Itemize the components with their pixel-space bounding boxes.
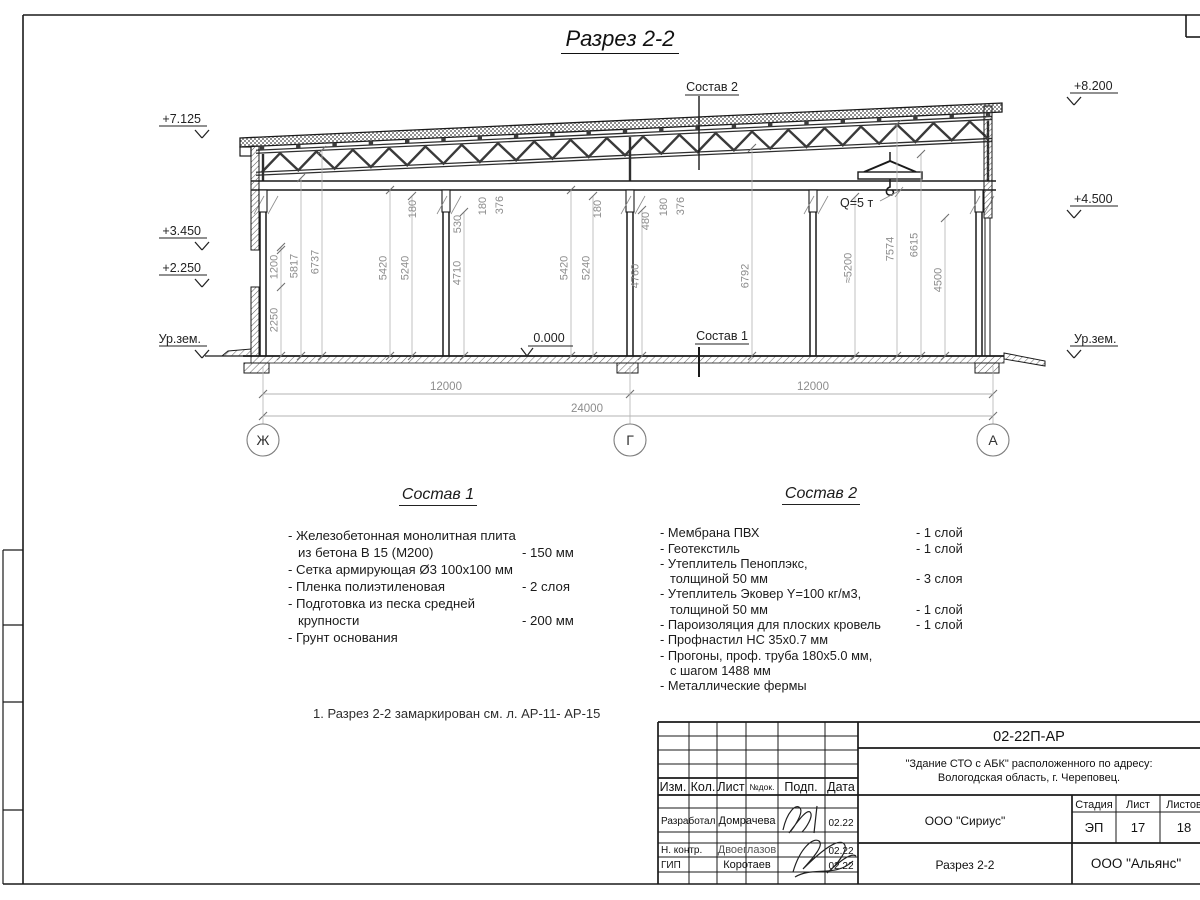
sheet-label: Лист bbox=[1126, 799, 1150, 811]
zero-level-label: 0.000 bbox=[533, 331, 564, 345]
svg-text:+3.450: +3.450 bbox=[162, 224, 201, 238]
crane-beam-line bbox=[251, 181, 996, 190]
vertical-dimension-texts: 2250 1200 5817 6737 5420 5240 4710 180 5… bbox=[269, 196, 945, 332]
right-apron bbox=[1004, 353, 1045, 366]
row-name: Коротаев bbox=[723, 859, 771, 871]
stage-value: ЭП bbox=[1085, 820, 1104, 835]
svg-text:1200: 1200 bbox=[269, 255, 281, 279]
design-org: ООО "Сириус" bbox=[925, 814, 1005, 828]
svg-text:+7.125: +7.125 bbox=[162, 112, 201, 126]
sheet-number: 17 bbox=[1131, 820, 1145, 835]
footings bbox=[244, 363, 999, 373]
svg-text:180: 180 bbox=[477, 197, 489, 215]
crane-hoist bbox=[858, 152, 922, 195]
drawing-sheet: Разрез 2-2 Состав 1 - Железобетонная мон… bbox=[0, 0, 1200, 900]
svg-text:5240: 5240 bbox=[581, 256, 593, 280]
svg-text:4760: 4760 bbox=[630, 264, 642, 288]
section-drawing-svg: 2250 1200 5817 6737 5420 5240 4710 180 5… bbox=[0, 0, 1200, 900]
svg-text:Ур.зем.: Ур.зем. bbox=[159, 332, 201, 346]
col-ndok: №док. bbox=[750, 782, 775, 792]
row-name: Домрачева bbox=[719, 815, 777, 827]
svg-text:376: 376 bbox=[675, 197, 687, 215]
svg-text:6615: 6615 bbox=[909, 233, 921, 257]
svg-text:180: 180 bbox=[592, 200, 604, 218]
svg-text:7574: 7574 bbox=[885, 237, 897, 261]
signature-1 bbox=[783, 807, 811, 833]
svg-text:5420: 5420 bbox=[559, 256, 571, 280]
svg-text:Ур.зем.: Ур.зем. bbox=[1074, 332, 1116, 346]
row-role: Разработал bbox=[661, 815, 716, 827]
svg-text:180: 180 bbox=[407, 200, 419, 218]
left-apron bbox=[222, 349, 251, 356]
col-list: Лист bbox=[717, 780, 744, 794]
svg-text:+4.500: +4.500 bbox=[1074, 192, 1113, 206]
row-date: 02.22 bbox=[828, 818, 853, 829]
col-izm: Изм. bbox=[660, 780, 687, 794]
row-role: ГИП bbox=[661, 860, 681, 871]
crane-capacity-label: Q=5 т bbox=[840, 196, 873, 210]
left-margin-cells bbox=[3, 550, 23, 884]
composition-1-callout: Состав 1 bbox=[696, 329, 748, 343]
svg-text:5420: 5420 bbox=[378, 256, 390, 280]
svg-text:530: 530 bbox=[452, 215, 464, 233]
title-block: 02-22П-АР "Здание СТО с АБК" расположенн… bbox=[658, 722, 1200, 884]
svg-text:6792: 6792 bbox=[740, 264, 752, 288]
svg-text:5240: 5240 bbox=[400, 256, 412, 280]
svg-text:+2.250: +2.250 bbox=[162, 261, 201, 275]
roof-deck bbox=[240, 103, 1002, 147]
svg-text:180: 180 bbox=[658, 198, 670, 216]
svg-text:≈5200: ≈5200 bbox=[843, 253, 855, 284]
signatures bbox=[783, 806, 856, 877]
col-podp: Подп. bbox=[784, 780, 817, 794]
svg-text:12000: 12000 bbox=[797, 381, 829, 393]
stage-label: Стадия bbox=[1075, 799, 1113, 811]
axis-bubbles: Ж Г А bbox=[247, 424, 1009, 456]
row-name: Двоеглазов bbox=[718, 844, 777, 856]
svg-text:2250: 2250 bbox=[269, 308, 281, 332]
axis-label: Ж bbox=[257, 432, 270, 448]
svg-text:4500: 4500 bbox=[933, 268, 945, 292]
columns bbox=[254, 190, 994, 356]
svg-text:480: 480 bbox=[640, 212, 652, 230]
horizontal-dimension-texts: 12000 12000 24000 bbox=[430, 381, 829, 415]
composition-2-callout: Состав 2 bbox=[686, 80, 738, 94]
axis-label: Г bbox=[626, 432, 634, 448]
elevation-texts: +7.125 +3.450 +2.250 Ур.зем. +8.200 +4.5… bbox=[159, 79, 1117, 346]
svg-text:24000: 24000 bbox=[571, 403, 603, 415]
col-data: Дата bbox=[827, 780, 855, 794]
col-kol: Кол. bbox=[691, 780, 716, 794]
object-name-line1: "Здание СТО с АБК" расположенного по адр… bbox=[905, 758, 1152, 770]
svg-text:4710: 4710 bbox=[452, 261, 464, 285]
row-role: Н. контр. bbox=[661, 845, 702, 856]
svg-text:376: 376 bbox=[494, 196, 506, 214]
sheets-label: Листов bbox=[1166, 799, 1200, 811]
svg-text:12000: 12000 bbox=[430, 381, 462, 393]
object-name-line2: Вологодская область, г. Череповец. bbox=[938, 772, 1120, 784]
sheets-total: 18 bbox=[1177, 820, 1191, 835]
svg-text:5817: 5817 bbox=[289, 254, 301, 278]
stamp-sheet-title: Разрез 2-2 bbox=[936, 858, 995, 872]
svg-text:6737: 6737 bbox=[310, 250, 322, 274]
svg-text:+8.200: +8.200 bbox=[1074, 79, 1113, 93]
customer-org: ООО "Альянс" bbox=[1091, 856, 1181, 871]
roof-left-eave bbox=[240, 147, 251, 156]
doc-code: 02-22П-АР bbox=[993, 729, 1065, 745]
axis-label: А bbox=[988, 432, 998, 448]
